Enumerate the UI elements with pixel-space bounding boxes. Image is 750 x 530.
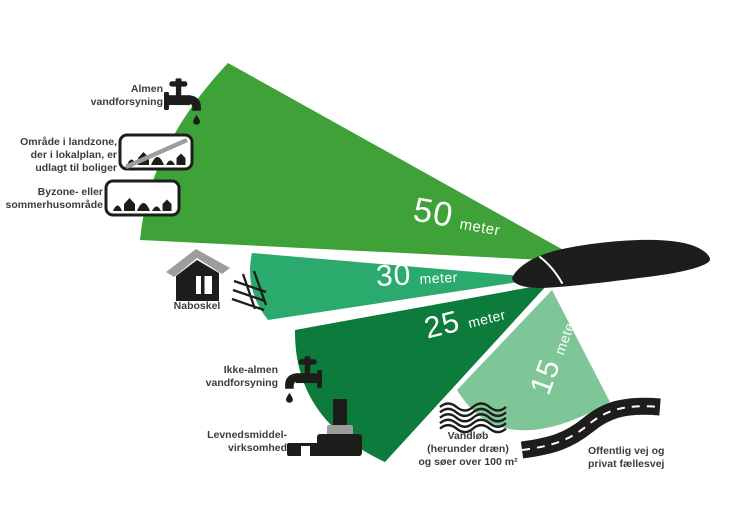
label-naboskel: Naboskel — [157, 300, 237, 313]
zone-25-unit: meter — [466, 306, 507, 331]
tap-icon — [164, 78, 201, 124]
house-icon — [166, 249, 230, 301]
label-offentlig-vej: Offentlig vej og privat fællesvej — [588, 445, 664, 471]
zone-50-value: 50 — [410, 191, 456, 236]
zone-50-unit: meter — [458, 216, 501, 240]
water-drop-icon — [286, 393, 293, 403]
label-ikke-almen-vandforsyning: Ikke-almen vandforsyning — [206, 364, 278, 390]
zone-30-value: 30 — [375, 258, 412, 294]
label-vandloeb: Vandløb (herunder dræn) og søer over 100… — [405, 430, 531, 469]
urban-zone-sign-icon — [106, 181, 179, 215]
label-almen-vandforsyning: Almen vandforsyning — [91, 83, 163, 109]
buffer-zones-infographic: 50 meter 30 meter 25 meter 15 meter Alme… — [0, 0, 750, 530]
no-urban-zone-sign-icon — [120, 135, 192, 169]
label-levnedsmiddelvirksomhed: Levnedsmiddel- virksomhed — [207, 429, 287, 455]
zone-30-label: 30 meter — [375, 256, 458, 294]
zone-50-wedge — [140, 63, 585, 262]
label-byzone-sommerhusomraade: Byzone- eller sommerhusområde — [6, 186, 103, 212]
zone-30-unit: meter — [419, 269, 458, 287]
label-omraade-i-landzone: Område i landzone, der i lokalplan, er u… — [20, 136, 117, 175]
